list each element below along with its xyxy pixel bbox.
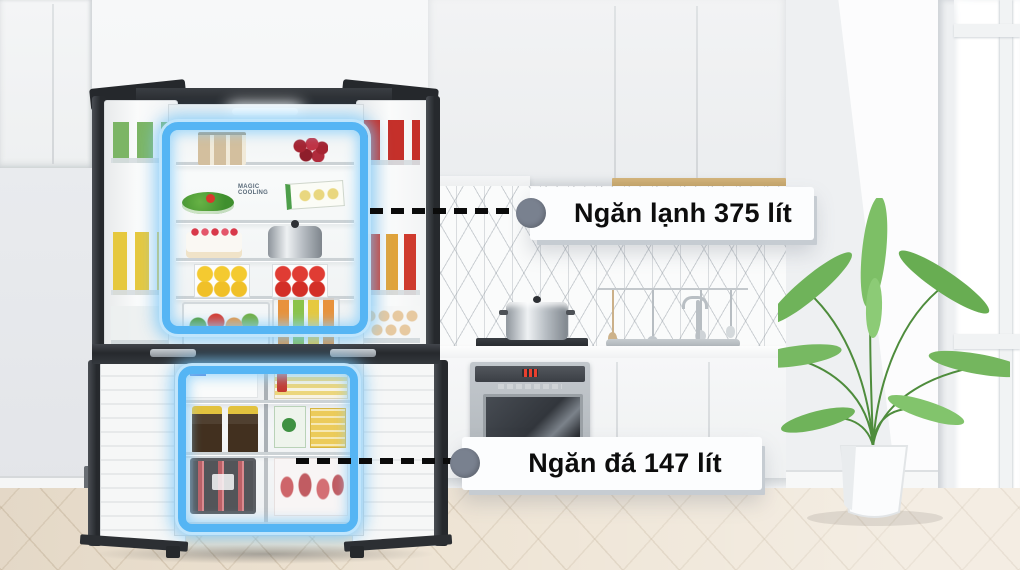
- door-bin-lower: [111, 306, 169, 345]
- fridge-right-door-edge: [426, 96, 440, 350]
- callout-text-freezer: Ngăn đá 147 lít: [528, 448, 722, 479]
- fresh-lamp: [232, 108, 298, 115]
- faucet-spout: [682, 296, 708, 309]
- kitchen-scene: MAGIC COOLING Ngăn lạnh 375 lít: [0, 0, 1020, 570]
- freezer-compartment-glow: [178, 366, 358, 532]
- pot-handle-left: [499, 310, 508, 315]
- fridge-foot: [350, 546, 364, 558]
- oven-buttons: [498, 384, 562, 389]
- cabinet-seam: [52, 4, 54, 164]
- utensil-rail: [598, 288, 748, 290]
- freezer-right-door-edge: [434, 360, 448, 546]
- upper-cabinets: [428, 0, 786, 186]
- callout-dot-fresh: [516, 198, 546, 228]
- door-bin-cans: [111, 122, 169, 163]
- callout-text-fresh: Ngăn lạnh 375 lít: [574, 198, 792, 229]
- fridge-foot: [166, 546, 180, 558]
- hinge-right: [330, 349, 376, 357]
- door-bin-bottles: [111, 232, 169, 295]
- pot-lid-knob: [533, 296, 541, 303]
- window-mullion-horizontal: [954, 24, 1020, 37]
- door-bin-eggs: [362, 306, 420, 343]
- hanging-whisk: [730, 290, 732, 328]
- left-upper-cabinet: [0, 0, 92, 168]
- cooking-pot: [506, 302, 568, 340]
- fresh-compartment-glow: [162, 122, 368, 334]
- freezer-right-door: [352, 362, 438, 546]
- fridge-middle-band: [92, 344, 440, 364]
- left-wall: [0, 168, 94, 490]
- potted-palm-plant: [778, 198, 1010, 530]
- hanging-whisk-head: [726, 326, 735, 338]
- cabinet-seam: [696, 6, 698, 182]
- callout-dot-freezer: [450, 448, 480, 478]
- callout-label-freezer: Ngăn đá 147 lít: [462, 437, 762, 490]
- oven-display: [522, 369, 538, 377]
- hinge-left: [150, 349, 196, 357]
- door-bin-sauce: [362, 234, 420, 295]
- callout-line-freezer: [296, 458, 454, 464]
- countertop: [426, 346, 788, 358]
- hanging-spoon: [612, 290, 614, 334]
- cabinet-seam: [614, 6, 616, 182]
- callout-label-fresh: Ngăn lạnh 375 lít: [530, 187, 814, 240]
- hanging-ladle: [652, 290, 654, 338]
- callout-line-fresh: [370, 208, 518, 214]
- pot-handle-right: [566, 310, 575, 315]
- door-bin-cola: [362, 120, 420, 165]
